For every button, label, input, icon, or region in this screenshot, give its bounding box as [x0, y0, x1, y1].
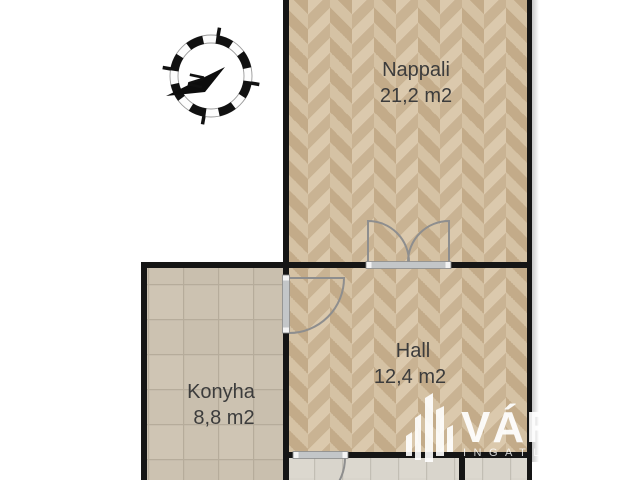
wall-vertical-left	[283, 0, 289, 480]
bottom-room-left-floor	[289, 458, 459, 480]
door-threshold	[283, 275, 290, 333]
double-door-threshold	[366, 262, 451, 269]
nappali-floor	[289, 0, 527, 262]
konyha-floor	[147, 268, 283, 480]
floorplan-canvas: N Nappali 21,2 m2 Hall 12,4 m2 Konyha 8,…	[0, 0, 640, 480]
watermark-title: VÁR	[461, 402, 560, 452]
hall-area: 12,4 m2	[374, 366, 446, 388]
hall-name: Hall	[396, 340, 430, 362]
wall-bottom-divider	[459, 458, 465, 480]
wall-shadow	[532, 0, 539, 462]
konyha-name: Konyha	[187, 381, 256, 403]
floorplan-drawing: N Nappali 21,2 m2 Hall 12,4 m2 Konyha 8,…	[0, 0, 640, 480]
nappali-name: Nappali	[382, 59, 450, 81]
wall-konyha-left	[141, 262, 147, 480]
watermark-logo: VÁR INGATLAN	[406, 393, 577, 462]
konyha-area: 8,8 m2	[193, 407, 254, 429]
bottom-door-threshold	[293, 452, 348, 459]
bottom-room-right-floor	[465, 458, 527, 480]
compass-rose: N	[163, 28, 260, 125]
nappali-area: 21,2 m2	[380, 85, 452, 107]
wall-horizontal-middle	[141, 262, 532, 268]
watermark-subtitle: INGATLAN	[463, 447, 577, 459]
